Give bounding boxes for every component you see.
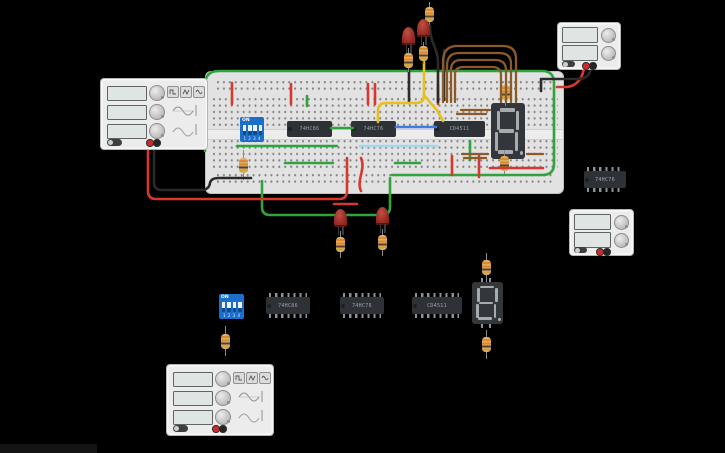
resistor-led-middle-1[interactable] [336, 231, 345, 258]
power-supply-top-right[interactable] [557, 22, 621, 70]
ic-label: 74HC76 [595, 177, 615, 183]
wire-yellow-branch[interactable] [424, 95, 443, 121]
fg-negative-terminal[interactable] [153, 139, 161, 147]
dip-switch-lever-2[interactable] [227, 302, 230, 312]
led-red-middle-1[interactable] [334, 209, 347, 227]
offset-wave-icon [237, 408, 265, 427]
fg-offset-knob[interactable] [215, 409, 231, 425]
triangle-wave-button[interactable] [246, 372, 258, 384]
psu-current-knob[interactable] [614, 233, 629, 248]
power-supply-right[interactable] [569, 209, 634, 256]
circuit-canvas: ON 1 2 3 4 74HC86 74HC76 CD4511 [0, 0, 725, 453]
fg-offset-knob[interactable] [149, 123, 165, 139]
fg-display-amplitude [173, 391, 213, 406]
led-red-middle-2[interactable] [376, 207, 389, 225]
psu-voltage-display [562, 27, 598, 43]
resistor-led-top-2[interactable] [419, 42, 428, 64]
fg-power-toggle[interactable] [173, 425, 188, 432]
ic-notch [585, 178, 589, 182]
dip-switch-lever-4[interactable] [238, 302, 241, 312]
function-generator-top-left[interactable] [100, 78, 208, 150]
ic-label: 74HC76 [352, 303, 372, 309]
wire-black-from-function-generator[interactable] [154, 146, 251, 190]
led-red-top-2[interactable] [417, 19, 430, 37]
fg-frequency-knob[interactable] [149, 85, 165, 101]
dip-switch-loose[interactable]: ON 1 2 3 4 [219, 294, 244, 319]
resistor-loose-dip[interactable] [221, 326, 230, 356]
ic-xor-74hc86-loose[interactable]: 74HC86 [266, 297, 310, 314]
fg-display-frequency [173, 372, 213, 387]
psu-power-toggle[interactable] [574, 247, 587, 253]
ic-notch [413, 304, 417, 308]
ic-flipflop-74hc76-loose[interactable]: 74HC76 [340, 297, 384, 314]
resistor-led-middle-2[interactable] [378, 229, 387, 256]
led-red-top-1[interactable] [402, 27, 415, 45]
ic-decoder-cd4511-loose[interactable]: CD4511 [412, 297, 462, 314]
resistor-loose-display-bottom[interactable] [482, 330, 491, 359]
bottom-bar [0, 444, 97, 453]
resistor-led-top-1[interactable] [404, 48, 413, 72]
seven-segment-display-loose[interactable] [472, 282, 503, 324]
wire-green-bottom-u[interactable] [262, 178, 390, 215]
psu-negative-terminal[interactable] [603, 248, 611, 256]
function-generator-bottom-left[interactable] [166, 364, 274, 436]
psu-voltage-display [574, 214, 611, 230]
sine-wave-button[interactable] [193, 86, 205, 98]
fg-negative-terminal[interactable] [219, 425, 227, 433]
wire-black-vertical-1[interactable] [430, 26, 438, 102]
psu-voltage-knob[interactable] [601, 28, 616, 43]
dip-position-numbers: 1 2 3 4 [219, 313, 244, 318]
wire-red-s-curve[interactable] [360, 158, 363, 191]
psu-negative-terminal[interactable] [589, 62, 597, 70]
amplitude-wave-icon [171, 103, 199, 122]
psu-power-toggle[interactable] [562, 61, 575, 67]
ic-label: 74HC86 [278, 303, 298, 309]
ic-label: CD4511 [427, 303, 447, 309]
triangle-wave-button[interactable] [180, 86, 192, 98]
dip-on-label: ON [221, 295, 229, 300]
fg-frequency-knob[interactable] [215, 371, 231, 387]
fg-display-amplitude [107, 105, 147, 120]
dip-switch-lever-1[interactable] [222, 302, 225, 312]
amplitude-wave-icon [237, 389, 265, 408]
ic-notch [267, 304, 271, 308]
psu-voltage-knob[interactable] [614, 215, 629, 230]
ic-notch [341, 304, 345, 308]
psu-current-display [562, 45, 598, 61]
psu-current-knob[interactable] [601, 46, 616, 61]
ic-flipflop-74hc76-right[interactable]: 74HC76 [584, 171, 626, 188]
offset-wave-icon [171, 122, 199, 141]
sine-wave-button[interactable] [259, 372, 271, 384]
fg-display-frequency [107, 86, 147, 101]
fg-amplitude-knob[interactable] [215, 390, 231, 406]
fg-power-toggle[interactable] [107, 139, 122, 146]
fg-display-offset [173, 410, 213, 425]
fg-amplitude-knob[interactable] [149, 104, 165, 120]
fg-display-offset [107, 124, 147, 139]
square-wave-button[interactable] [233, 372, 245, 384]
dip-switch-lever-3[interactable] [233, 302, 236, 312]
square-wave-button[interactable] [167, 86, 179, 98]
psu-current-display [574, 232, 611, 248]
